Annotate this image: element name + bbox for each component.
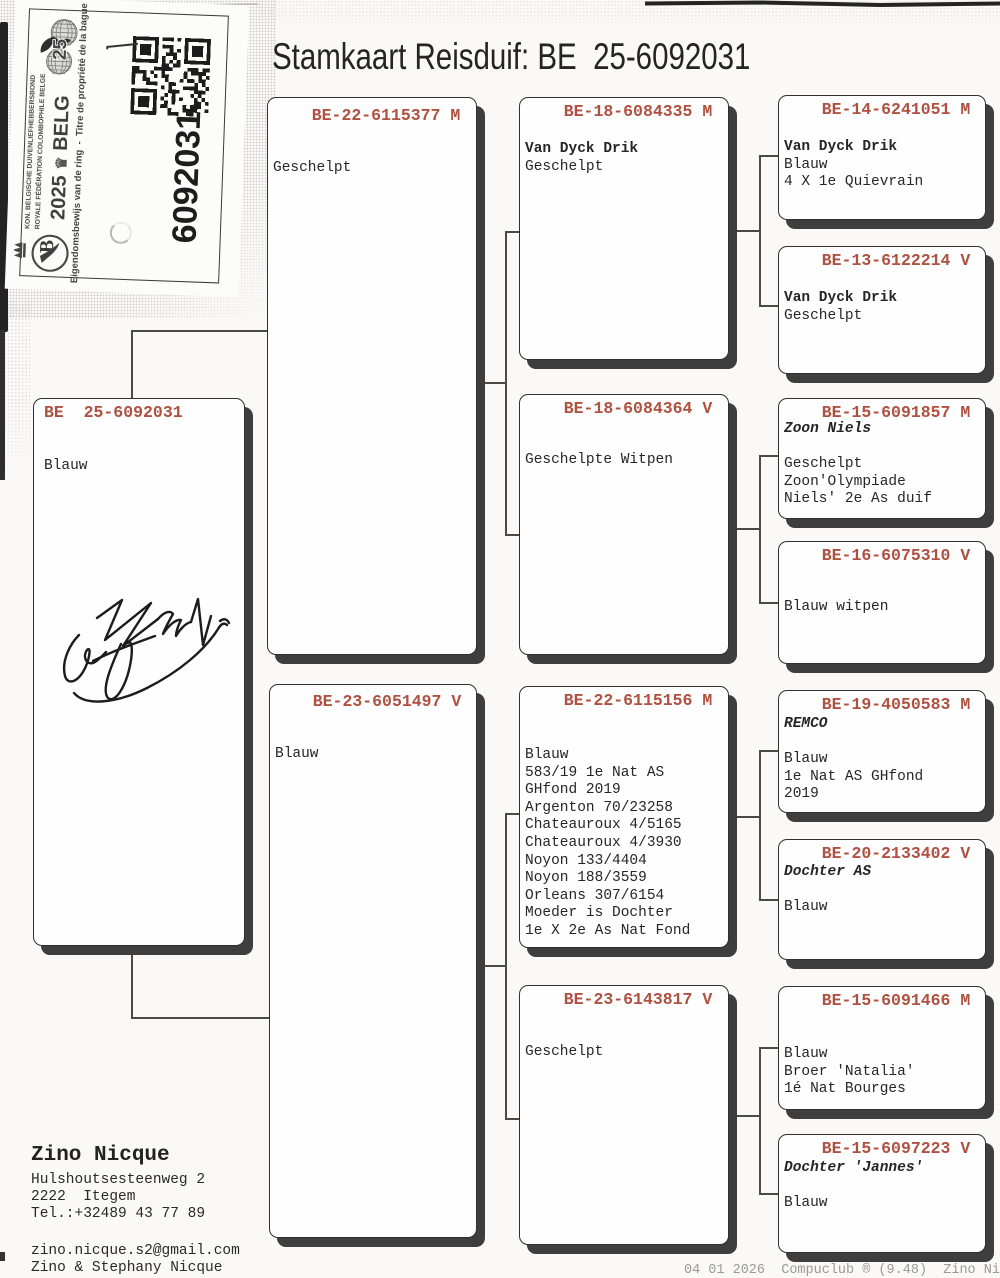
- svg-text:25: 25: [50, 38, 72, 60]
